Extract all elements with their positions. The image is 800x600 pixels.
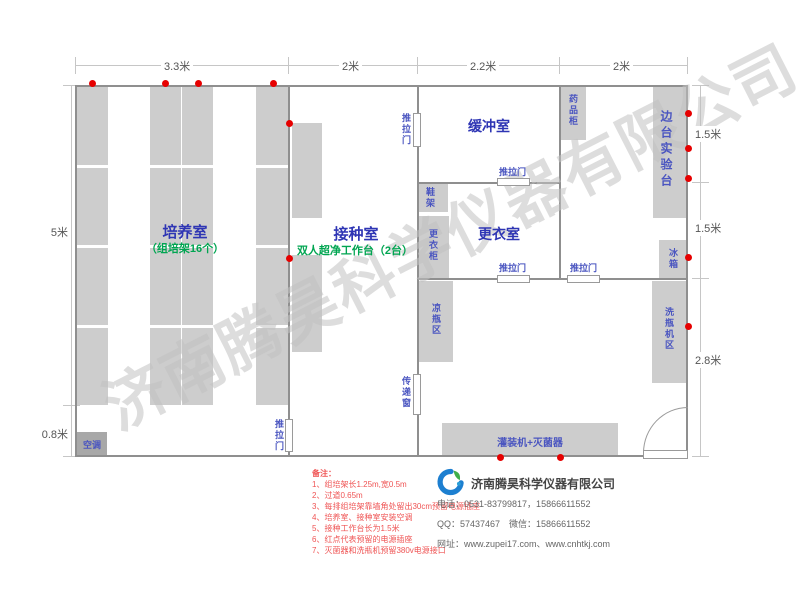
power-socket-dot xyxy=(286,120,293,127)
dim-tick xyxy=(288,57,289,74)
power-socket-dot xyxy=(685,175,692,182)
company-phone: 电话：0531-83799817，15866611552 xyxy=(437,494,590,514)
label-filling-sterilizer: 灌装机+灭菌器 xyxy=(442,434,618,449)
label-cool-bottle-area: 凉瓶区 xyxy=(431,303,440,336)
power-socket-dot xyxy=(685,254,692,261)
room-label-culture: 培养室 xyxy=(142,221,228,242)
power-socket-dot xyxy=(89,80,96,87)
room-label-buffer: 缓冲室 xyxy=(448,116,530,136)
company-logo-icon xyxy=(437,468,465,496)
dim-top-1: 3.3米 xyxy=(161,58,193,74)
power-socket-dot xyxy=(497,454,504,461)
dim-tick xyxy=(692,456,709,457)
dim-tick xyxy=(417,57,418,74)
label-bottle-washer-area: 洗瓶机区 xyxy=(664,307,673,351)
dim-tick xyxy=(692,182,709,183)
floor-plan: 济南腾昊科学仪器有限公司 3.3米 2米 2.2米 2米 5米 0.8米 1.5… xyxy=(0,0,800,600)
label-shoe-rack: 鞋架 xyxy=(425,187,434,209)
dim-right-2: 1.5米 xyxy=(692,220,724,236)
power-socket-dot xyxy=(557,454,564,461)
room-label-inoculation: 接种室 xyxy=(313,223,399,244)
dim-top-4: 2米 xyxy=(610,58,633,74)
label-fridge: 冰箱 xyxy=(668,248,677,270)
wall-buffer-dressing xyxy=(417,182,561,184)
dim-top-2: 2米 xyxy=(339,58,362,74)
room-label-side-bench: 边台实验台 xyxy=(660,110,672,190)
label-sliding-door: 推拉门 xyxy=(570,261,597,274)
room-note-culture: （组培架16个） xyxy=(130,240,240,256)
label-sliding-door: 推拉门 xyxy=(274,419,283,452)
sliding-door-buffer-left xyxy=(413,113,421,147)
label-sliding-door: 推拉门 xyxy=(499,261,526,274)
dim-tick xyxy=(559,57,560,74)
dim-left-1: 5米 xyxy=(40,224,68,240)
wall-culture-inoculation xyxy=(288,85,290,457)
power-socket-dot xyxy=(195,80,202,87)
sliding-door-buffer-bottom xyxy=(497,178,530,186)
company-name: 济南腾昊科学仪器有限公司 xyxy=(471,475,615,492)
power-socket-dot xyxy=(162,80,169,87)
dim-tick xyxy=(687,57,688,74)
label-sliding-door: 推拉门 xyxy=(499,165,526,178)
dim-left-2: 0.8米 xyxy=(30,426,68,442)
dim-tick xyxy=(692,85,709,86)
power-socket-dot xyxy=(685,323,692,330)
power-socket-dot xyxy=(685,110,692,117)
label-sliding-door: 推拉门 xyxy=(401,113,410,146)
pass-window xyxy=(413,374,421,415)
sliding-door-culture xyxy=(285,419,293,452)
sliding-door-dressing-bottom xyxy=(497,275,530,283)
dim-tick xyxy=(692,278,709,279)
label-wardrobe: 更衣柜 xyxy=(428,229,437,262)
power-socket-dot xyxy=(270,80,277,87)
dim-tick xyxy=(75,57,76,74)
wall-dressing-bottom xyxy=(417,278,688,280)
dim-right-3: 2.8米 xyxy=(692,352,724,368)
dim-line-left xyxy=(71,85,72,457)
entrance-door-leaf xyxy=(643,450,688,459)
power-socket-dot xyxy=(685,145,692,152)
company-website: 网址：www.zupei17.com、www.cnhtkj.com xyxy=(437,534,610,554)
dim-top-3: 2.2米 xyxy=(467,58,499,74)
label-air-conditioner: 空调 xyxy=(77,438,107,451)
room-label-dressing: 更衣室 xyxy=(458,224,540,244)
room-note-inoculation: 双人超净工作台（2台） xyxy=(290,242,420,258)
label-medicine-cabinet: 药品柜 xyxy=(568,94,577,127)
dim-right-1: 1.5米 xyxy=(692,126,724,142)
company-qq-wechat: QQ：57437467 微信：15866611552 xyxy=(437,514,590,534)
sliding-door-lab-bottom xyxy=(567,275,600,283)
label-pass-window: 传递窗 xyxy=(401,376,410,409)
